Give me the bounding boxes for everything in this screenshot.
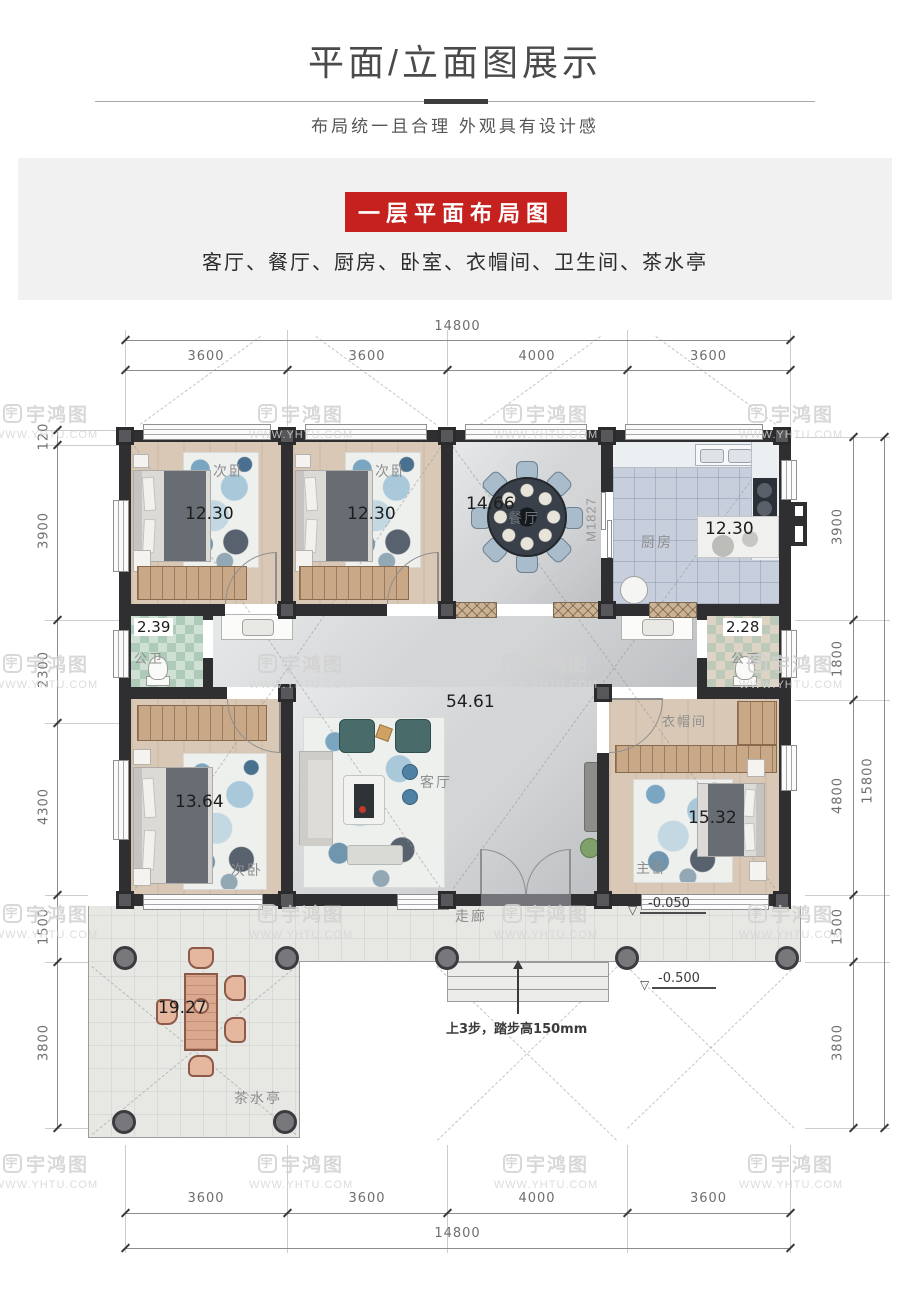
- area-label-master: 15.32: [688, 808, 737, 828]
- porch-edge: [299, 962, 300, 1138]
- structural-column: [278, 601, 296, 619]
- nightstand: [133, 868, 151, 886]
- section-banner: 一层平面布局图: [345, 192, 567, 232]
- nightstand: [133, 454, 149, 468]
- room-label-kitchen: 厨房: [641, 532, 673, 552]
- extension-line: [447, 330, 448, 426]
- yhtu-logo-icon: 宇: [3, 654, 22, 673]
- table-decor: [359, 806, 366, 813]
- porch-edge: [800, 906, 801, 962]
- dim-top-seg1: 3600: [125, 349, 287, 364]
- dim-right-seg5: 3800: [831, 1003, 846, 1083]
- yhtu-logo-icon: 宇: [503, 1154, 522, 1173]
- dim-bottom-seg1: 3600: [125, 1191, 287, 1206]
- window: [781, 630, 797, 678]
- extension-line: [795, 437, 890, 438]
- dim-bottom-seg2: 3600: [287, 1191, 447, 1206]
- water-heater: [620, 576, 648, 604]
- steps-note: 上3步，踏步高150mm: [446, 1018, 587, 1037]
- watermark-text: 宇鸿图: [281, 1150, 344, 1177]
- arrow-head: [513, 960, 523, 969]
- sliding-door-panel: [601, 492, 606, 530]
- sink-basin: [642, 619, 674, 636]
- page-title: 平面/立面图展示: [0, 34, 910, 86]
- watermark: 宇宇鸿图WWW.YHTU.COM: [0, 400, 112, 441]
- entry-steps: [447, 962, 609, 1002]
- window: [465, 424, 587, 440]
- dim-left-seg6: 3800: [37, 1003, 52, 1083]
- room-label-master: 主卧: [636, 858, 668, 878]
- dim-top-overall: 14800: [125, 319, 790, 334]
- sink-basin: [242, 619, 274, 636]
- room-label-cloakroom: 衣帽间: [662, 711, 707, 730]
- room-label-bedroom-a: 次卧: [213, 461, 245, 481]
- bed-pillow: [142, 778, 157, 819]
- wall-interior: [697, 687, 791, 699]
- extension-line: [287, 330, 288, 426]
- watermark: 宇宇鸿图WWW.YHTU.COM: [0, 650, 112, 691]
- level-ground: -0.500: [658, 971, 700, 986]
- dim-right-seg3: 4800: [831, 756, 846, 836]
- bed-pillow: [304, 519, 318, 554]
- floor-plan-page: 平面/立面图展示 布局统一且合理 外观具有设计感 一层平面布局图 客厅、餐厅、厨…: [0, 0, 910, 1298]
- bed-pillow: [142, 477, 156, 512]
- dim-left-seg2: 3900: [37, 491, 52, 571]
- coffee-table-tray: [354, 784, 374, 818]
- wall-interior: [441, 430, 453, 616]
- porch-edge: [88, 906, 89, 1138]
- stove: [753, 478, 777, 520]
- pouf: [402, 789, 418, 805]
- stove-burner: [757, 501, 772, 516]
- sofa-armrest: [300, 838, 332, 846]
- page-subtitle: 布局统一且合理 外观具有设计感: [0, 112, 910, 137]
- level-marker-icon: ▽: [628, 903, 637, 917]
- bed-blanket: [166, 768, 208, 883]
- structural-column: [438, 601, 456, 619]
- dim-left-seg3: 2300: [37, 630, 52, 710]
- sofa-back: [300, 760, 308, 838]
- door-threshold: [649, 602, 697, 618]
- structural-column: [278, 684, 296, 702]
- door-code-label: M1827: [584, 490, 599, 550]
- dim-right-seg1: 3900: [831, 487, 846, 567]
- dim-line: [125, 370, 790, 371]
- bed-pillow: [743, 789, 756, 818]
- structural-column: [116, 427, 134, 445]
- structural-column: [438, 427, 456, 445]
- dim-top-seg4: 3600: [627, 349, 790, 364]
- watermark-url: WWW.YHTU.COM: [249, 1179, 353, 1191]
- watermark-text: 宇鸿图: [771, 1150, 834, 1177]
- watermark: 宇宇鸿图WWW.YHTU.COM: [235, 1150, 367, 1191]
- level-marker-line: [640, 912, 706, 914]
- extension-line: [790, 330, 791, 426]
- extension-line: [795, 700, 890, 701]
- wall-interior: [697, 604, 791, 616]
- structural-column: [116, 891, 134, 909]
- structural-column: [278, 427, 296, 445]
- porch-edge: [88, 1137, 300, 1138]
- area-label-bedroom-b: 12.30: [347, 504, 396, 524]
- area-label-kitchen: 12.30: [705, 519, 754, 539]
- dim-left-seg4: 4300: [37, 767, 52, 847]
- wardrobe: [737, 701, 777, 745]
- watermark-url: WWW.YHTU.COM: [0, 1179, 98, 1191]
- title-divider-accent: [424, 99, 488, 104]
- watermark: 宇宇鸿图WWW.YHTU.COM: [480, 1150, 612, 1191]
- room-label-bedroom-c: 次卧: [231, 860, 263, 880]
- tea-chair: [224, 975, 246, 1001]
- tv-bench: [347, 845, 403, 865]
- structural-column: [438, 891, 456, 909]
- structural-column: [594, 684, 612, 702]
- watermark-text: 宇鸿图: [281, 400, 344, 427]
- watermark-text: 宇鸿图: [526, 1150, 589, 1177]
- bed: [133, 767, 213, 884]
- step-line: [448, 976, 608, 977]
- door-threshold: [553, 602, 603, 618]
- porch-column: [275, 946, 299, 970]
- area-label-tea-pavilion: 19.27: [158, 998, 207, 1018]
- door-leaf: [569, 849, 571, 894]
- wall-interior: [203, 604, 213, 620]
- bed-pillow: [743, 823, 755, 852]
- room-list: 客厅、餐厅、厨房、卧室、衣帽间、卫生间、茶水亭: [0, 246, 910, 275]
- extension-line: [627, 330, 628, 426]
- pouf: [402, 764, 418, 780]
- dim-left-seg5: 1500: [37, 887, 52, 967]
- window: [143, 894, 263, 910]
- armchair: [395, 719, 431, 753]
- sink-basin: [728, 449, 752, 463]
- step-line: [448, 989, 608, 990]
- dim-line: [125, 1248, 790, 1249]
- structural-column: [773, 427, 791, 445]
- stove-burner: [757, 483, 772, 498]
- bed-pillow: [142, 519, 156, 554]
- dim-line: [884, 437, 885, 1128]
- window: [113, 500, 129, 572]
- level-marker-icon: ▽: [640, 978, 649, 992]
- yhtu-logo-icon: 宇: [258, 404, 277, 423]
- nightstand: [749, 861, 767, 881]
- area-label-dining: 14.66: [466, 494, 515, 514]
- room-label-bedroom-b: 次卧: [375, 461, 407, 481]
- structural-column: [278, 891, 296, 909]
- dim-line: [125, 340, 790, 341]
- dim-line: [57, 430, 58, 1128]
- tea-chair: [188, 947, 214, 969]
- dim-bottom-seg4: 3600: [627, 1191, 790, 1206]
- porch-column: [615, 946, 639, 970]
- porch-column: [435, 946, 459, 970]
- dim-left-seg1: 120: [37, 397, 52, 477]
- watermark-text: 宇鸿图: [26, 1150, 89, 1177]
- nightstand: [747, 759, 765, 777]
- bed-headboard: [134, 768, 142, 883]
- armchair: [339, 719, 375, 753]
- sofa-armrest: [300, 752, 332, 760]
- room-label-living: 客厅: [420, 772, 452, 792]
- level-marker-line: [652, 987, 716, 989]
- yhtu-logo-icon: 宇: [748, 1154, 767, 1173]
- room-label-tea-pavilion: 茶水亭: [234, 1088, 282, 1108]
- extension-line: [805, 1128, 890, 1129]
- area-label-bedroom-a: 12.30: [185, 504, 234, 524]
- structural-column: [598, 601, 616, 619]
- wall-interior: [697, 604, 707, 620]
- extension-line: [805, 962, 890, 963]
- yhtu-logo-icon: 宇: [3, 904, 22, 923]
- watermark: 宇宇鸿图WWW.YHTU.COM: [0, 1150, 112, 1191]
- window: [143, 424, 271, 440]
- sofa: [299, 751, 333, 845]
- sliding-door-panel: [607, 520, 612, 558]
- wall-interior: [119, 687, 227, 699]
- coffee-table: [343, 775, 385, 825]
- structural-column: [773, 891, 791, 909]
- dim-top-seg3: 4000: [447, 349, 627, 364]
- porch-column: [775, 946, 799, 970]
- bed-pillow: [304, 477, 318, 512]
- bed-headboard: [756, 784, 764, 856]
- extension-line: [805, 895, 890, 896]
- extension-line: [125, 330, 126, 426]
- watermark-text: 宇鸿图: [526, 400, 589, 427]
- tea-chair: [188, 1055, 214, 1077]
- room-label-bath-right: 公卫: [731, 648, 761, 667]
- entrance-threshold: [481, 894, 571, 906]
- watermark-text: 宇鸿图: [771, 400, 834, 427]
- bed-headboard: [296, 471, 304, 561]
- dim-bottom-seg3: 4000: [447, 1191, 627, 1206]
- dim-right-seg2: 1800: [831, 619, 846, 699]
- door-leaf: [437, 552, 439, 604]
- dim-line: [125, 1213, 790, 1214]
- flue-damper: [795, 516, 803, 526]
- nightstand: [295, 454, 311, 468]
- dim-line: [853, 437, 854, 1128]
- wall-interior: [597, 753, 609, 906]
- porch-column: [113, 946, 137, 970]
- extension-line: [45, 1128, 88, 1129]
- dim-bottom-overall: 14800: [125, 1226, 790, 1241]
- structural-column: [594, 891, 612, 909]
- area-label-bath-right: 2.28: [723, 618, 762, 636]
- watermark-url: WWW.YHTU.COM: [494, 1179, 598, 1191]
- watermark-text: 宇鸿图: [26, 400, 89, 427]
- area-label-bath-left: 2.39: [134, 618, 173, 636]
- window: [781, 745, 797, 791]
- kitchen-sink: [695, 444, 757, 466]
- room-label-corridor: 走廊: [455, 906, 487, 926]
- window: [113, 760, 129, 840]
- yhtu-logo-icon: 宇: [503, 404, 522, 423]
- bed-pillow: [142, 830, 156, 871]
- window: [781, 460, 797, 500]
- wall-interior: [281, 430, 293, 616]
- dim-right-seg4: 1500: [831, 887, 846, 967]
- window: [113, 630, 129, 678]
- area-label-living: 54.61: [446, 692, 495, 712]
- yhtu-logo-icon: 宇: [3, 404, 22, 423]
- area-label-bedroom-c: 13.64: [175, 792, 224, 812]
- door-leaf: [275, 552, 277, 604]
- pavilion-column: [112, 1110, 136, 1134]
- door-leaf: [480, 849, 482, 894]
- wall-interior: [281, 687, 293, 906]
- dim-right-overall: 15800: [861, 741, 876, 821]
- watermark: 宇宇鸿图WWW.YHTU.COM: [725, 1150, 857, 1191]
- door-leaf: [609, 698, 663, 700]
- pavilion-column: [273, 1110, 297, 1134]
- yhtu-logo-icon: 宇: [3, 1154, 22, 1173]
- steps-direction-arrow: [517, 968, 519, 1014]
- sink-basin: [700, 449, 724, 463]
- room-label-bath-left: 公卫: [134, 648, 164, 667]
- window: [625, 424, 763, 440]
- dim-top-seg2: 3600: [287, 349, 447, 364]
- structural-column: [598, 427, 616, 445]
- nightstand: [133, 749, 151, 765]
- level-porch: -0.050: [648, 896, 690, 911]
- extension-line: [790, 1145, 791, 1253]
- tea-chair: [224, 1017, 246, 1043]
- yhtu-logo-icon: 宇: [258, 1154, 277, 1173]
- window: [305, 424, 427, 440]
- bed-headboard: [134, 471, 142, 561]
